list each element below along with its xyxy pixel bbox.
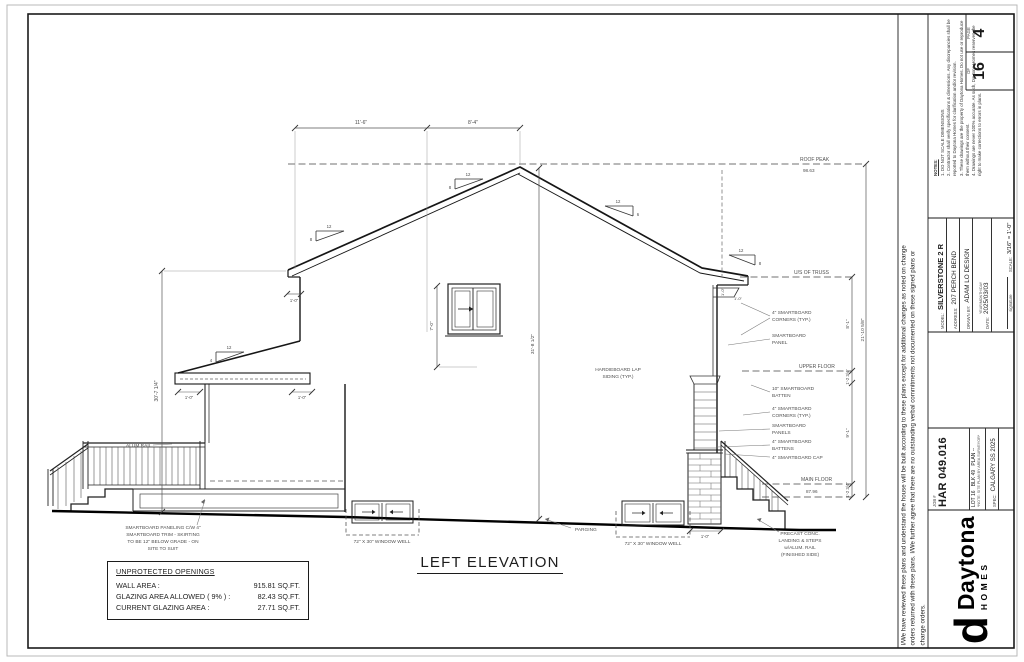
level-upper-floor: UPPER FLOOR — [799, 364, 835, 370]
model-row: MODEL: SILVERSTONE 2 R — [930, 218, 947, 332]
annot-window-well-1: 72" X 30" WINDOW WELL — [354, 539, 411, 545]
row-label: WALL AREA : — [116, 581, 160, 592]
row-label: CURRENT GLAZING AREA : — [116, 603, 209, 614]
pitch-run-2: 12 — [466, 172, 471, 177]
pitch-rise-4: 8 — [759, 261, 762, 266]
annot-skirting-4: SITE TO SUIT — [148, 546, 179, 552]
walls — [205, 277, 739, 512]
annot-panel-b: PANEL — [772, 340, 788, 346]
dimension-lines — [162, 128, 866, 531]
drawing-sheet: 11'-6" 8'-4" 30'-7 1/4" 7'-0" 31'-8 1/2"… — [0, 0, 1024, 662]
pitch-run-4: 12 — [739, 248, 744, 253]
annot-corners2-a: 4" SMARTBOARD — [772, 406, 812, 412]
pitch-rise-5: 4 — [210, 358, 213, 363]
pitch-rise-2: 8 — [449, 185, 452, 190]
daytona-d-icon: d — [955, 616, 988, 644]
brick-pillar — [686, 450, 723, 524]
spec-row: SPEC: CALGARY SS 2025 — [986, 428, 999, 510]
annot-precast-3: w/ALUM. RAIL — [784, 545, 816, 551]
date-label: DATE: — [985, 317, 990, 329]
pitch-rise-1: 8 — [310, 237, 313, 242]
dim-porch-left: 1'-0" — [185, 395, 194, 400]
dim-top-right: 8'-4" — [468, 120, 478, 126]
leader-lines — [153, 303, 779, 532]
dim-left-height: 30'-7 1/4" — [154, 380, 160, 401]
row-value: 915.81 SQ.FT. — [254, 581, 300, 592]
pitch-run-1: 12 — [327, 224, 332, 229]
note-item: 1. DO NOT SCALE DIMENSIONS — [940, 18, 946, 176]
dim-main-joist: 1'-2 3/4" — [845, 482, 850, 498]
annot-skirting-1: SMARTBOARD PANELING C/W 4" — [125, 525, 201, 531]
spec-value: CALGARY SS 2025 — [991, 438, 997, 491]
annot-panels-b: PANELS — [772, 430, 791, 436]
logo-sub: HOMES — [979, 516, 989, 610]
pitch-run-5: 12 — [227, 345, 232, 350]
annot-skirting-2: SMARTBOARD TRIM - SKIRTING — [126, 532, 200, 538]
unprotected-openings-table: UNPROTECTED OPENINGS WALL AREA : 915.81 … — [107, 561, 309, 620]
deck-railing — [83, 441, 345, 511]
disclaimer-text: I/We have reviewed these plans and under… — [900, 231, 928, 646]
annot-skirting-3: TO BE 12" BELOW GRADE - ON — [127, 539, 199, 545]
lot-row: LOT 16 BLK 49 PLAN -- *NOTE: SITE PLAN B… — [970, 428, 986, 510]
annot-battens4-a: 4" SMARTBOARD — [772, 439, 812, 445]
roof-outline — [288, 167, 748, 285]
level-us-truss: U/S OF TRUSS — [794, 270, 830, 276]
note-item: 3. These drawings are the property of Da… — [959, 18, 970, 176]
note-item: 4. Drawings are never 100% accurate. As … — [971, 18, 982, 176]
dimension-ticks — [159, 125, 869, 534]
scale-signature-row: signature SCALE: 3/16" = 1'-0" — [992, 218, 1014, 332]
project-info-block: MODEL: SILVERSTONE 2 R ADDRESS: 207 PERC… — [930, 218, 1014, 332]
note-item: 2. Contractor shall verify specification… — [946, 18, 957, 176]
notes-heading: NOTES: — [933, 18, 939, 176]
scale-value: 3/16" = 1'-0" — [1007, 223, 1013, 255]
annot-corners1-b: CORNERS (TYP.) — [772, 317, 811, 323]
level-roof-peak-value: 98.63 — [803, 168, 815, 173]
dim-right-eave-a: 1'-0" — [734, 296, 743, 301]
drawn-by-row: DRAWN BY: ADAM LO DESIGN — [960, 218, 973, 332]
date-value: 2025/03/03 — [983, 282, 990, 314]
date-row: DATE: YEAR/MONTH/DAY 2025/03/03 — [973, 218, 992, 332]
basement-window-2 — [616, 501, 690, 537]
notes-block: NOTES: 1. DO NOT SCALE DIMENSIONS 2. Con… — [930, 16, 1014, 218]
table-row: CURRENT GLAZING AREA : 27.71 SQ.FT. — [116, 603, 300, 614]
annot-precast-2: LANDING & STEPS — [779, 538, 822, 544]
pitch-rise-3: 6 — [637, 212, 640, 217]
openings-table-title: UNPROTECTED OPENINGS — [116, 567, 300, 576]
drawing-texts: 11'-6" 8'-4" 30'-7 1/4" 7'-0" 31'-8 1/2"… — [125, 120, 866, 558]
annot-batten10-b: BATTEN — [772, 393, 791, 399]
dim-overall-height: 21'-10 5/8" — [860, 318, 866, 341]
spec-label: SPEC: — [992, 494, 997, 507]
level-main-floor: MAIN FLOOR — [801, 477, 833, 483]
drawn-by-label: DRAWN BY: — [966, 306, 971, 329]
drawing-title-text: LEFT ELEVATION — [417, 554, 562, 574]
porch-roof — [175, 341, 310, 384]
row-label: GLAZING AREA ALLOWED ( 9% ) : — [116, 592, 230, 603]
drawing-title: LEFT ELEVATION — [390, 554, 590, 574]
dim-foundation: 1'-0" — [701, 534, 710, 539]
dim-upper-joist: 1'-2 3/4" — [845, 369, 850, 385]
row-value: 27.71 SQ.FT. — [258, 603, 300, 614]
job-row: JOB # HAR 049.016 — [930, 428, 970, 510]
model-value: SILVERSTONE 2 R — [936, 244, 945, 310]
logo-brand: Daytona — [955, 516, 978, 610]
address-label: ADDRESS: — [953, 308, 958, 329]
level-roof-peak: ROOF PEAK — [800, 157, 830, 163]
scale-label: SCALE: — [1008, 257, 1013, 272]
job-number: HAR 049.016 — [937, 431, 949, 507]
annot-window-well-2: 72" X 30" WINDOW WELL — [625, 541, 682, 547]
dim-right-eave-b: 1'-0" — [720, 287, 725, 296]
left-stairs — [48, 444, 133, 511]
pitch-run-3: 12 — [616, 199, 621, 204]
dim-top-left: 11'-6" — [355, 120, 368, 126]
upper-window — [445, 284, 503, 336]
annot-panels-a: SMARTBOARD — [772, 423, 806, 429]
dim-overall-mid: 31'-8 1/2" — [530, 334, 536, 355]
address-row: ADDRESS: 207 PERCH BEND — [947, 218, 960, 332]
dim-window-height: 7'-0" — [429, 321, 434, 331]
annot-corners1-a: 4" SMARTBOARD — [772, 310, 812, 316]
dim-truss-upper: 8'-1" — [845, 319, 850, 329]
annot-corners2-b: CORNERS (TYP.) — [772, 413, 811, 419]
address-value: 207 PERCH BEND — [951, 251, 958, 305]
table-row: GLAZING AREA ALLOWED ( 9% ) : 82.43 SQ.F… — [116, 592, 300, 603]
annot-precast-1: PRECAST CONC. — [780, 531, 819, 537]
dim-upper-main: 9'-1" — [845, 428, 850, 438]
model-label: MODEL: — [940, 313, 945, 329]
annot-precast-4: (FINISHED SIDE) — [781, 552, 820, 558]
level-main-floor-value: 87.96 — [806, 489, 818, 494]
annot-hardie-2: SIDING (TYP.) — [602, 374, 633, 380]
annot-panel-a: SMARTBOARD — [772, 333, 806, 339]
annot-parging: PARGING — [575, 527, 597, 533]
annot-cap: 4" SMARTBOARD CAP — [772, 455, 823, 461]
batten-siding-detail — [694, 384, 717, 450]
annot-hardie-1: HARDIEBOARD LAP — [595, 367, 641, 373]
table-row: WALL AREA : 915.81 SQ.FT. — [116, 581, 300, 592]
dim-porch-right: 1'-0" — [298, 395, 307, 400]
annot-batten10-a: 10" SMARTBOARD — [772, 386, 815, 392]
daytona-homes-logo: d Daytona HOMES — [930, 515, 1014, 645]
job-info-block: JOB # HAR 049.016 LOT 16 BLK 49 PLAN -- … — [930, 428, 1014, 510]
row-value: 82.43 SQ.FT. — [258, 592, 300, 603]
dim-eave-overhang: 1'-0" — [290, 298, 299, 303]
annot-battens4-b: BATTENS — [772, 446, 794, 452]
lot-note: *NOTE: SITE PLAN BY AREA SURVEYOR* — [977, 431, 981, 507]
signature-line: signature — [1007, 277, 1013, 329]
annot-alum-rail: ALUM RAIL — [126, 443, 152, 449]
drawn-by-value: ADAM LO DESIGN — [964, 248, 971, 302]
